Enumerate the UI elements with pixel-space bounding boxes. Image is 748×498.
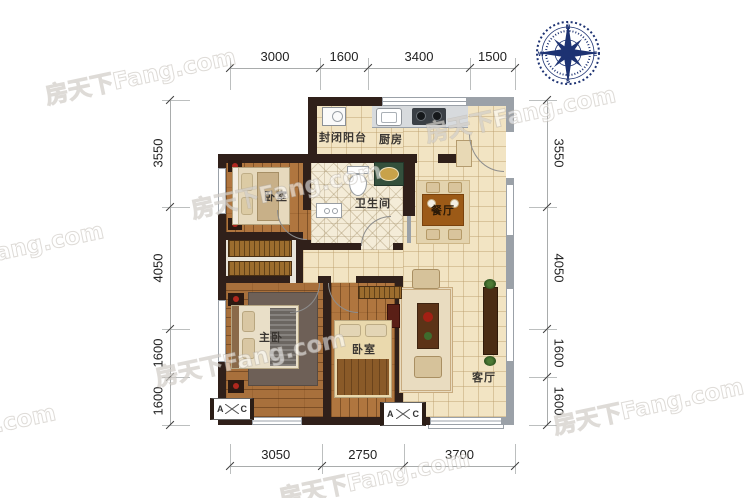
dim-extension — [470, 58, 471, 90]
living-window-bottom — [430, 417, 502, 425]
dining-window — [506, 184, 514, 236]
dim-label: 1600 — [151, 386, 166, 415]
wall-master-top — [226, 276, 290, 283]
dim-line — [230, 466, 515, 467]
dim-extension — [368, 58, 369, 90]
bedroom-window-left — [218, 168, 226, 214]
dim-label: 4050 — [552, 253, 567, 282]
armchair — [414, 356, 442, 378]
wall-bedroom-right — [303, 163, 311, 210]
label-bathroom: 卫生间 — [346, 197, 400, 210]
plant — [484, 279, 496, 289]
label-living: 客厅 — [465, 371, 503, 384]
dim-extension — [162, 100, 190, 101]
dim-label: 1600 — [552, 338, 567, 367]
dim-extension — [230, 444, 231, 474]
ac-letter-c: C — [413, 409, 420, 419]
ac-letter-c: C — [241, 404, 248, 414]
dim-label: 2750 — [348, 447, 377, 462]
dim-extension — [515, 444, 516, 474]
dim-extension — [515, 58, 516, 90]
tv-cabinet — [483, 287, 498, 355]
plant — [484, 356, 496, 366]
watermark: 房天下Fang.com — [0, 211, 106, 285]
floorplan-page: 餐厅 — [0, 0, 748, 498]
nightstand — [228, 380, 244, 393]
ac-letter-a: A — [387, 409, 394, 419]
wall-bathroom-bottom — [311, 243, 361, 250]
wall-bathroom-right — [403, 154, 415, 216]
window-sill — [428, 425, 504, 429]
label-bedroom-top: 卧室 — [260, 190, 292, 203]
stove — [412, 108, 446, 125]
washing-machine — [322, 107, 346, 126]
dim-label: 1600 — [330, 49, 359, 64]
dim-label: 3400 — [405, 49, 434, 64]
label-bedroom-bottom: 卧室 — [348, 343, 380, 356]
dining-table: 餐厅 — [422, 194, 464, 226]
dim-line — [230, 68, 515, 69]
entry-door-opening — [506, 132, 514, 178]
label-balcony: 封闭阳台 — [314, 131, 372, 144]
master-window-left — [218, 300, 226, 362]
dim-extension — [230, 58, 231, 90]
wall-bottom-corner — [500, 417, 514, 425]
label-master-bedroom: 主卧 — [255, 331, 287, 344]
kitchen-sink — [376, 108, 402, 126]
dim-extension — [162, 207, 190, 208]
watermark: 房天下Fang.com — [0, 393, 58, 467]
dining-chair — [426, 229, 440, 240]
dim-extension — [320, 58, 321, 90]
ac-letter-a: A — [217, 404, 224, 414]
dim-extension — [529, 100, 557, 101]
wall-bathroom-right-thin — [407, 216, 411, 243]
bathroom-vanity — [374, 162, 404, 186]
dim-extension — [529, 329, 557, 330]
ac-cross-icon — [225, 404, 239, 414]
dim-label: 1600 — [151, 338, 166, 367]
wall-wardrobe-corridor — [296, 240, 303, 283]
dim-extension — [162, 329, 190, 330]
compass-e: E — [593, 51, 598, 58]
dim-label: 1600 — [552, 386, 567, 415]
living-window-right — [506, 288, 514, 362]
ac-marker-left: A C — [210, 398, 254, 420]
dim-extension — [162, 377, 190, 378]
dim-label: 3700 — [445, 447, 474, 462]
wall-stub — [393, 243, 403, 250]
compass-w: W — [538, 51, 545, 58]
wall-top — [308, 97, 384, 106]
watermark: 房天下Fang.com — [42, 37, 239, 111]
dim-extension — [529, 425, 557, 426]
wall-master-bedroom2 — [323, 276, 331, 417]
dining-chair — [426, 182, 440, 193]
compass-s: S — [566, 78, 571, 85]
dim-extension — [529, 377, 557, 378]
wall-stub — [303, 240, 311, 250]
dim-label: 3050 — [261, 447, 290, 462]
dim-label: 1500 — [478, 49, 507, 64]
wardrobe — [228, 261, 292, 276]
coffee-table — [417, 303, 439, 349]
dim-extension — [322, 444, 323, 474]
dim-extension — [162, 425, 190, 426]
kitchen-window — [382, 97, 468, 106]
dim-extension — [404, 444, 405, 474]
dim-label: 4050 — [151, 253, 166, 282]
wall-top-right — [466, 97, 514, 106]
dining-chair — [448, 182, 462, 193]
dim-label: 3550 — [552, 139, 567, 168]
armchair — [412, 269, 440, 289]
wardrobe — [358, 286, 402, 299]
wardrobe — [228, 240, 292, 257]
dim-extension — [529, 207, 557, 208]
master-window-bottom — [252, 417, 302, 425]
dim-label: 3550 — [151, 139, 166, 168]
label-kitchen: 厨房 — [376, 133, 406, 146]
toilet-tank — [347, 166, 369, 174]
dim-label: 3000 — [261, 49, 290, 64]
compass-n: N — [566, 24, 571, 31]
dining-label: 餐厅 — [431, 202, 455, 218]
bathroom-cabinet — [316, 203, 342, 218]
watermark: 房天下Fang.com — [550, 367, 747, 441]
bed-bottom-bedroom — [334, 320, 392, 398]
compass-icon: N E S W — [532, 17, 604, 89]
ac-marker-right: A C — [380, 402, 426, 426]
dining-chair — [448, 229, 462, 240]
ac-cross-icon — [396, 409, 410, 419]
